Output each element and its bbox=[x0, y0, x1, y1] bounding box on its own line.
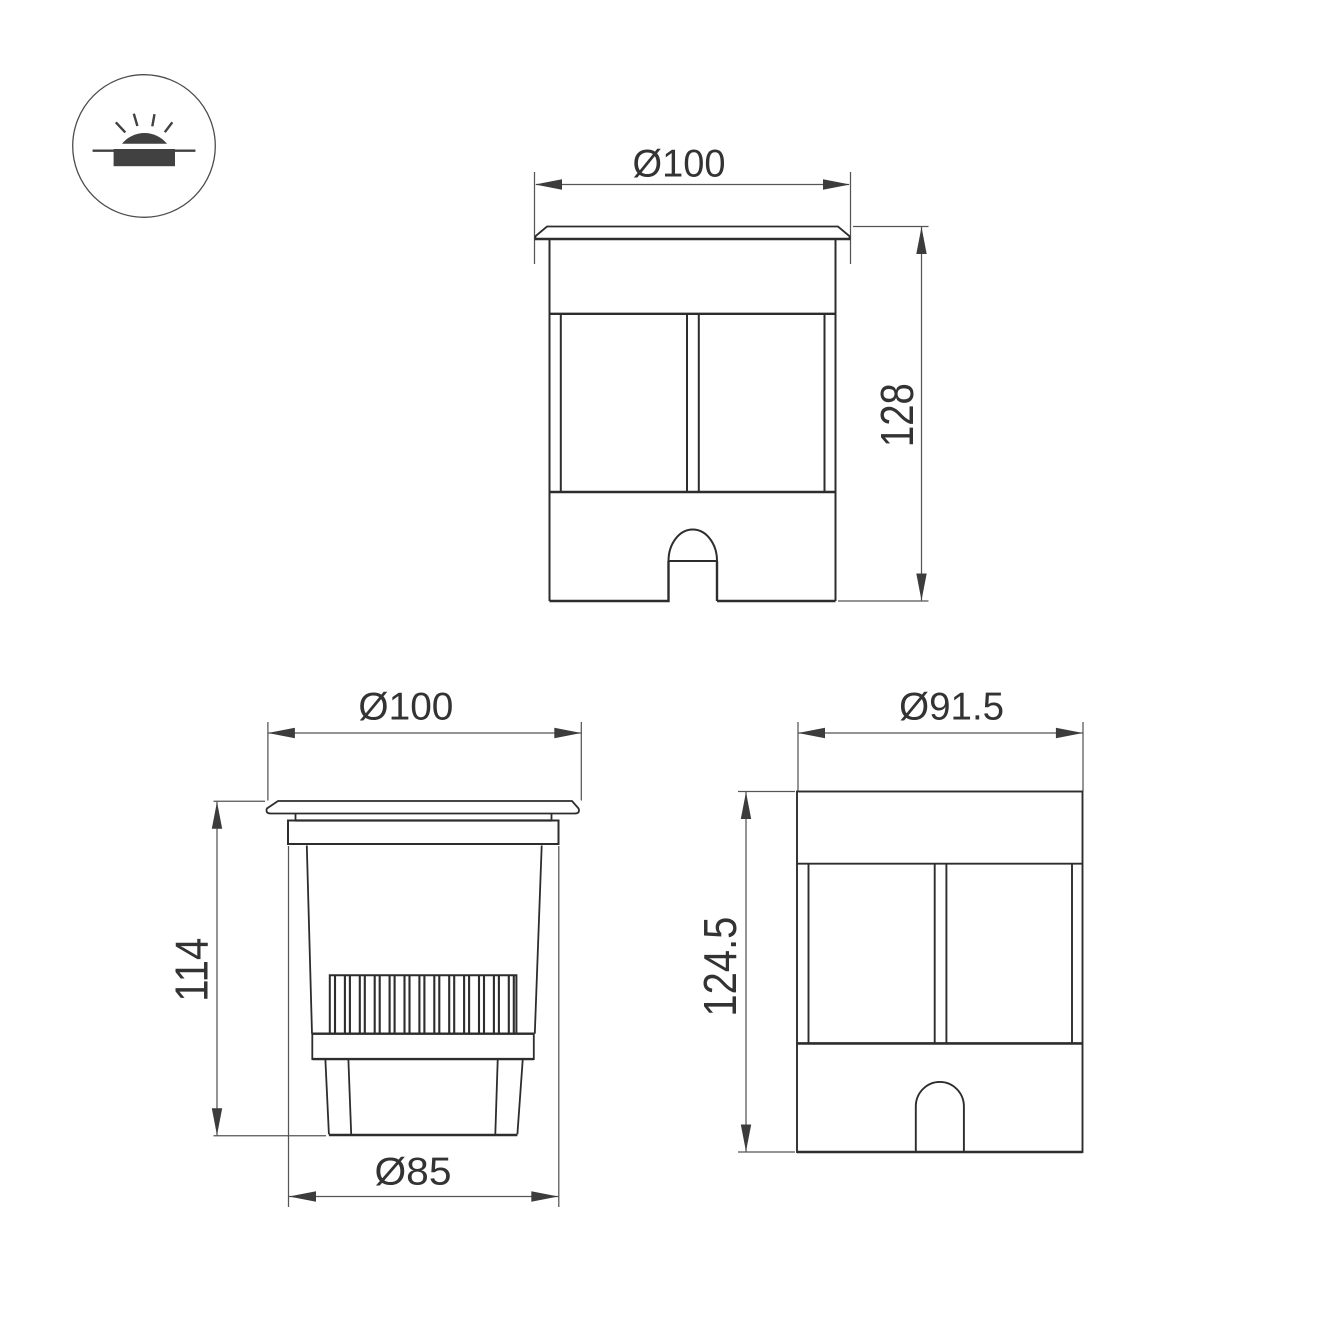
svg-text:Ø100: Ø100 bbox=[633, 143, 726, 186]
svg-text:114: 114 bbox=[166, 938, 218, 1002]
svg-text:Ø85: Ø85 bbox=[375, 1150, 452, 1193]
svg-text:124.5: 124.5 bbox=[694, 917, 746, 1017]
svg-text:Ø91.5: Ø91.5 bbox=[899, 686, 1004, 729]
svg-text:128: 128 bbox=[871, 383, 923, 447]
svg-text:Ø100: Ø100 bbox=[358, 685, 453, 728]
